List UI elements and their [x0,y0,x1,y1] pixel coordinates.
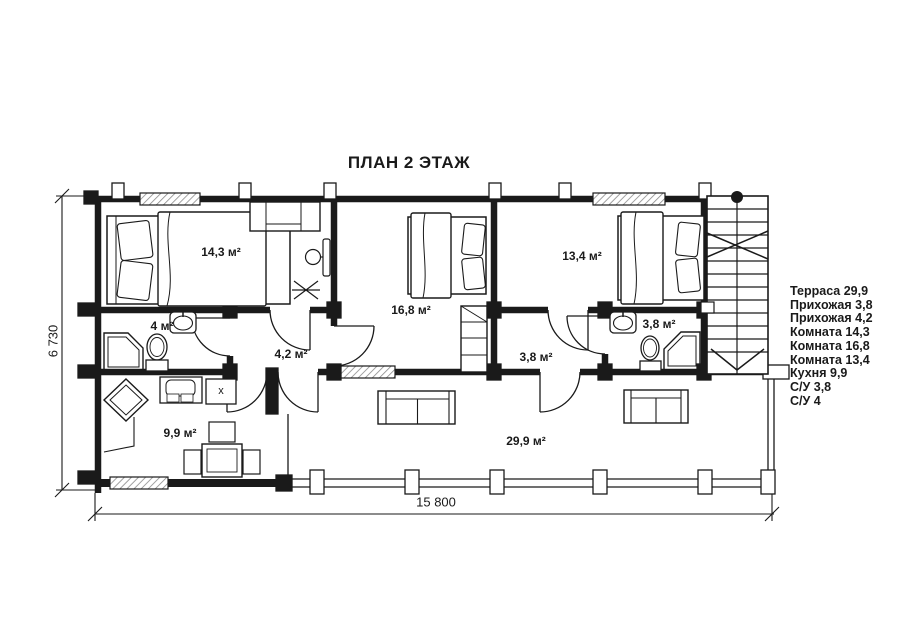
legend-item-hall1: Прихожая 3,8 [790,299,873,313]
door-hall2-terrace [540,372,580,412]
legend-item-bath2: С/У 4 [790,395,873,409]
bed-room2-icon [408,213,486,298]
legend-item-room2: Комната 16,8 [790,340,873,354]
room-label-hall2: 3,8 м² [520,350,553,364]
legend-item-hall2: Прихожая 4,2 [790,312,873,326]
legend-item-terrace: Терраса 29,9 [790,285,873,299]
shower-icon [104,333,143,371]
door-room2 [334,326,374,366]
corner-shower-icon [664,332,700,370]
toilet-icon [640,336,661,371]
sofa-icon-1 [378,391,455,424]
plant-table-icon [104,379,148,421]
window-room2-south [337,366,395,378]
floor-plan-page: ПЛАН 2 ЭТАЖ 14,3 м² 16,8 м² 13,4 м² 4 м²… [0,0,900,636]
plan-title: ПЛАН 2 ЭТАЖ [348,153,470,173]
room-label-room1: 14,3 м² [201,245,241,259]
wardrobe-room1-icon [250,202,320,231]
door-room1 [270,310,310,350]
door-bath1 [192,318,230,356]
legend-item-room1: Комната 14,3 [790,326,873,340]
window-room3 [593,193,665,205]
toilet-icon [146,334,168,371]
window-room1 [140,193,200,205]
room-label-room2: 16,8 м² [391,303,431,317]
legend-item-room3: Комната 13,4 [790,354,873,368]
floor-plan-drawing [0,0,900,636]
door-kitchen-terrace [278,372,318,412]
room-label-terrace: 29,9 м² [506,434,546,448]
staircase [701,191,768,374]
stair-newel-dot [731,191,743,203]
dimension-width-label: 15 800 [416,495,456,510]
room-label-bath2: 3,8 м² [643,317,676,331]
shelving-room2-icon [461,306,487,372]
room-label-room3: 13,4 м² [562,249,602,263]
legend-item-bath1: С/У 3,8 [790,381,873,395]
tv-icon [306,239,331,276]
legend-item-kitchen: Кухня 9,9 [790,367,873,381]
sink-icon [170,309,196,333]
sink-icon [610,309,636,333]
room-label-kitchen: 9,9 м² [164,426,197,440]
room-label-hall1: 4,2 м² [275,347,308,361]
stove-marker: x [218,385,224,397]
door-bath2 [567,316,605,354]
window-kitchen-south [110,477,168,489]
sofa-icon-2 [624,390,688,423]
room-label-bath1: 4 м² [151,319,174,333]
fan-icon [292,281,320,299]
dimension-depth-label: 6 730 [46,325,61,358]
legend: Терраса 29,9 Прихожая 3,8 Прихожая 4,2 К… [790,285,873,408]
counter-edge [104,417,134,452]
kitchen-sink-icon [160,377,202,403]
bed-room3-icon [618,212,704,304]
